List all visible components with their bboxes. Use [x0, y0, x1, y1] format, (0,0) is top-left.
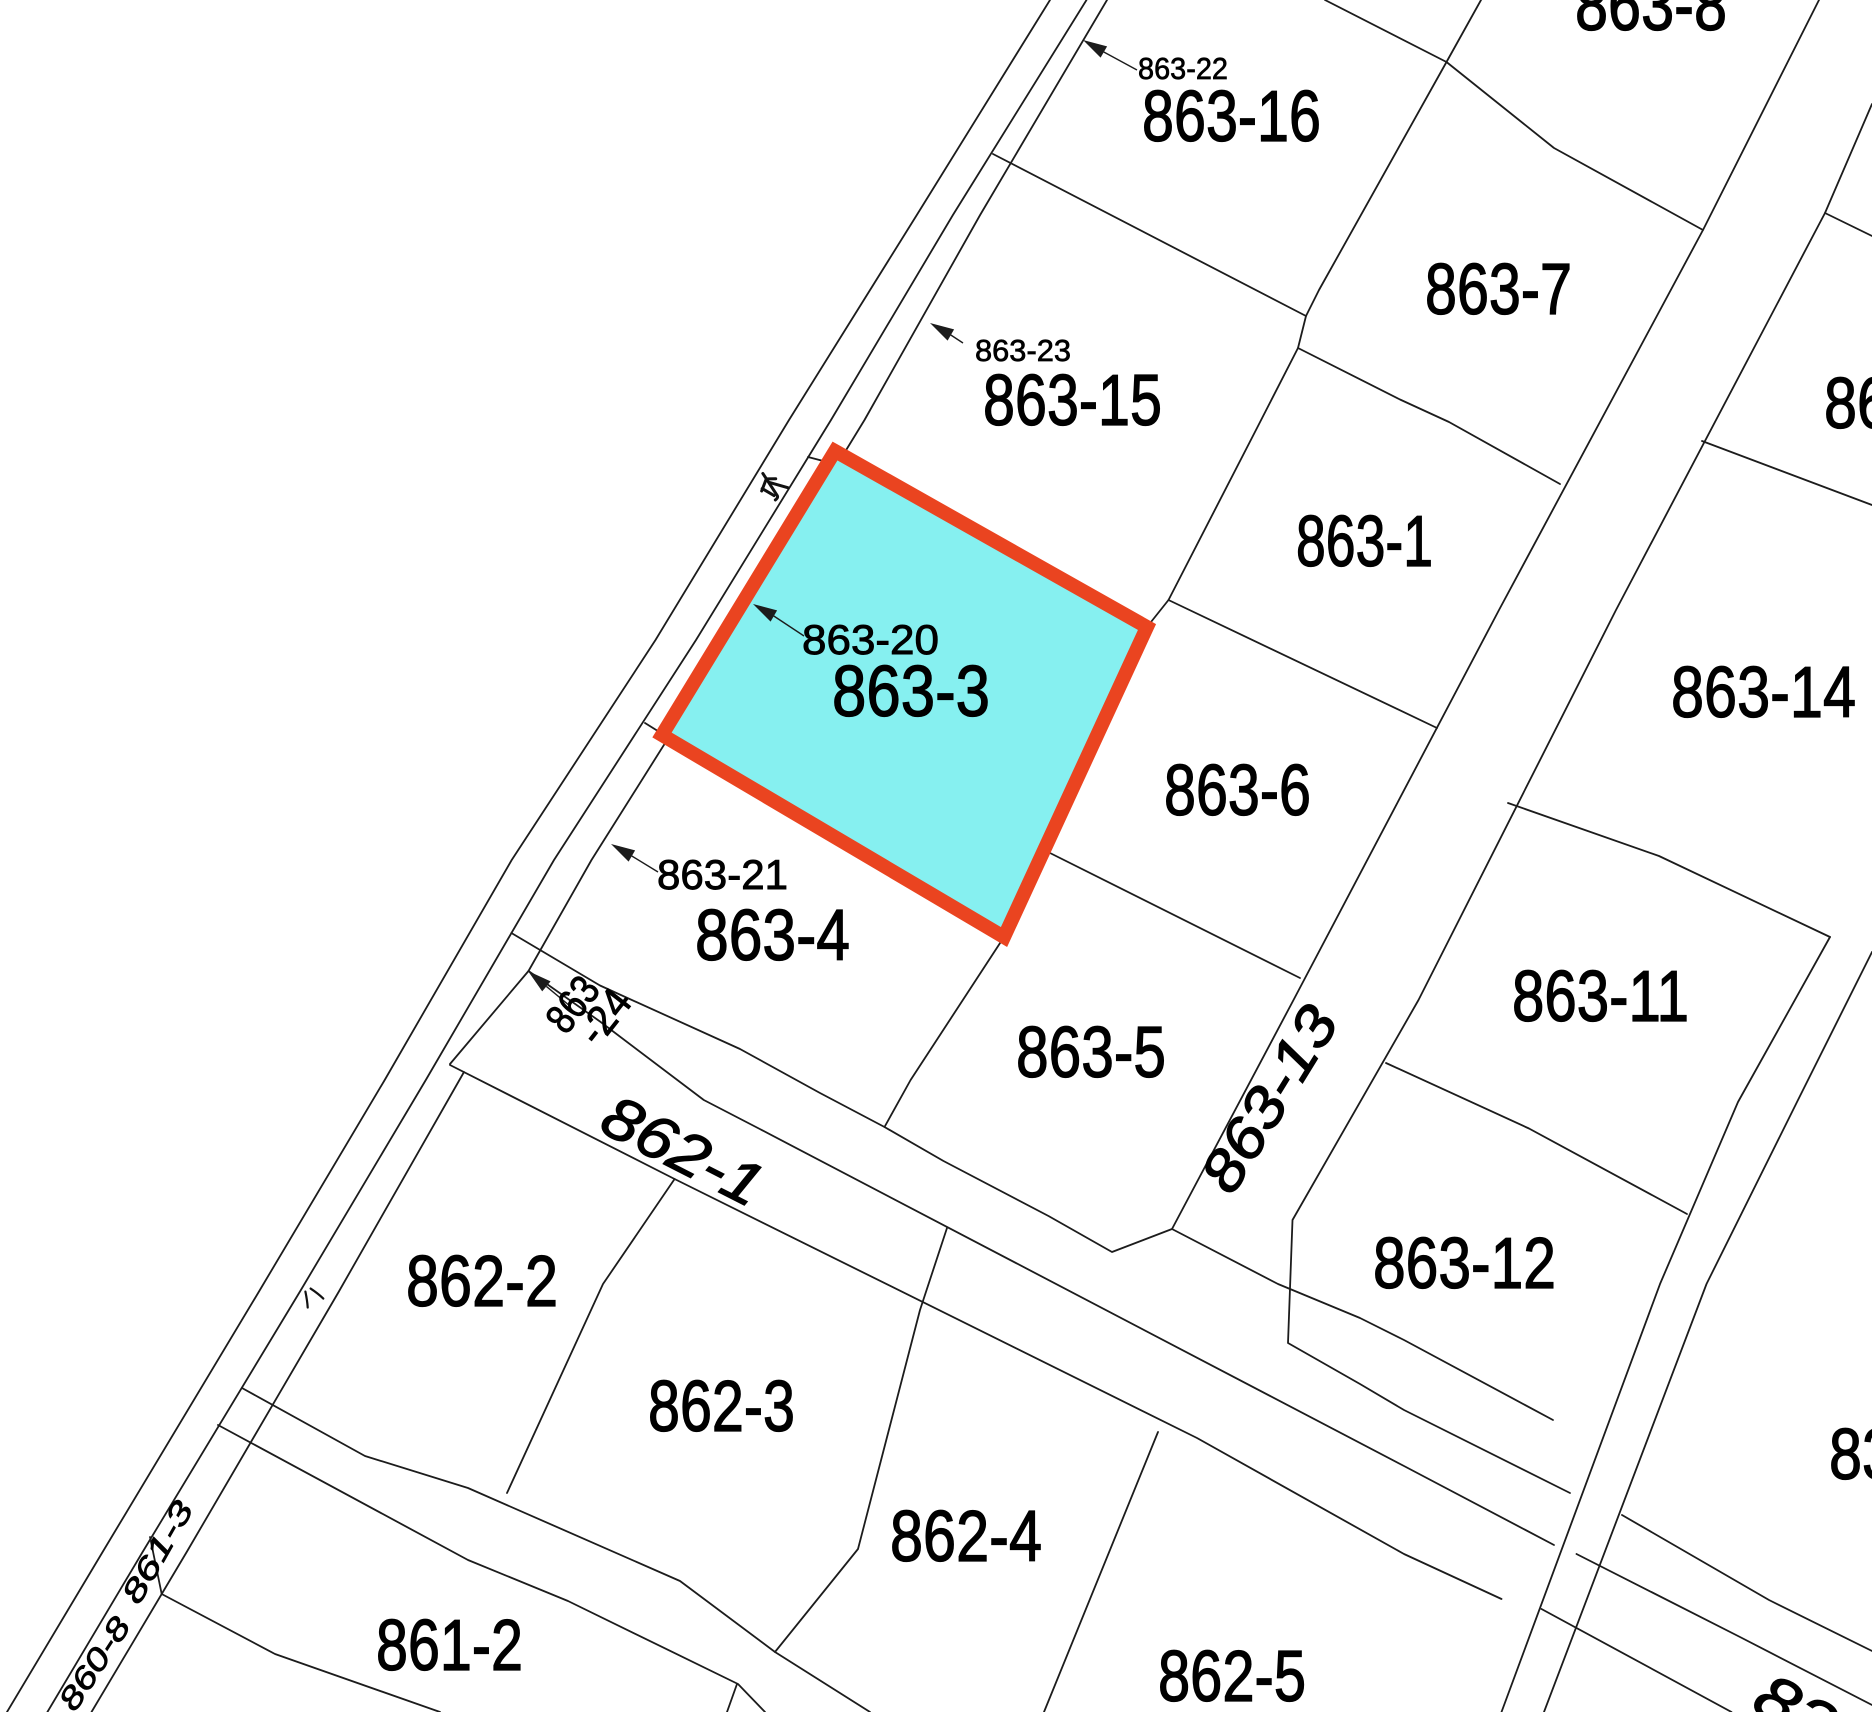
svg-text:863-16: 863-16 — [1142, 77, 1321, 157]
svg-text:863-11: 863-11 — [1512, 957, 1689, 1037]
svg-text:862-5: 862-5 — [1158, 1637, 1306, 1712]
svg-text:863-15: 863-15 — [983, 361, 1162, 441]
svg-text:862-2: 862-2 — [406, 1242, 558, 1322]
svg-text:863-23: 863-23 — [975, 333, 1071, 368]
svg-text:861-2: 861-2 — [376, 1606, 523, 1686]
svg-text:863-6: 863-6 — [1164, 751, 1311, 831]
svg-text:863-8: 863-8 — [1575, 0, 1727, 46]
svg-text:863-20: 863-20 — [802, 616, 939, 663]
svg-text:863-5: 863-5 — [1016, 1013, 1166, 1093]
svg-text:863-1: 863-1 — [1296, 502, 1433, 582]
svg-text:863-22: 863-22 — [1138, 51, 1228, 86]
svg-text:86: 86 — [1824, 364, 1872, 444]
svg-text:863-21: 863-21 — [657, 851, 788, 898]
svg-text:863-7: 863-7 — [1425, 250, 1572, 330]
svg-text:862-3: 862-3 — [648, 1367, 795, 1447]
svg-text:863-3: 863-3 — [832, 652, 990, 732]
svg-text:862-4: 862-4 — [890, 1497, 1042, 1577]
svg-text:863-12: 863-12 — [1373, 1224, 1556, 1304]
svg-text:83: 83 — [1829, 1415, 1872, 1495]
svg-text:863-4: 863-4 — [695, 896, 850, 976]
svg-text:863-14: 863-14 — [1671, 653, 1856, 733]
